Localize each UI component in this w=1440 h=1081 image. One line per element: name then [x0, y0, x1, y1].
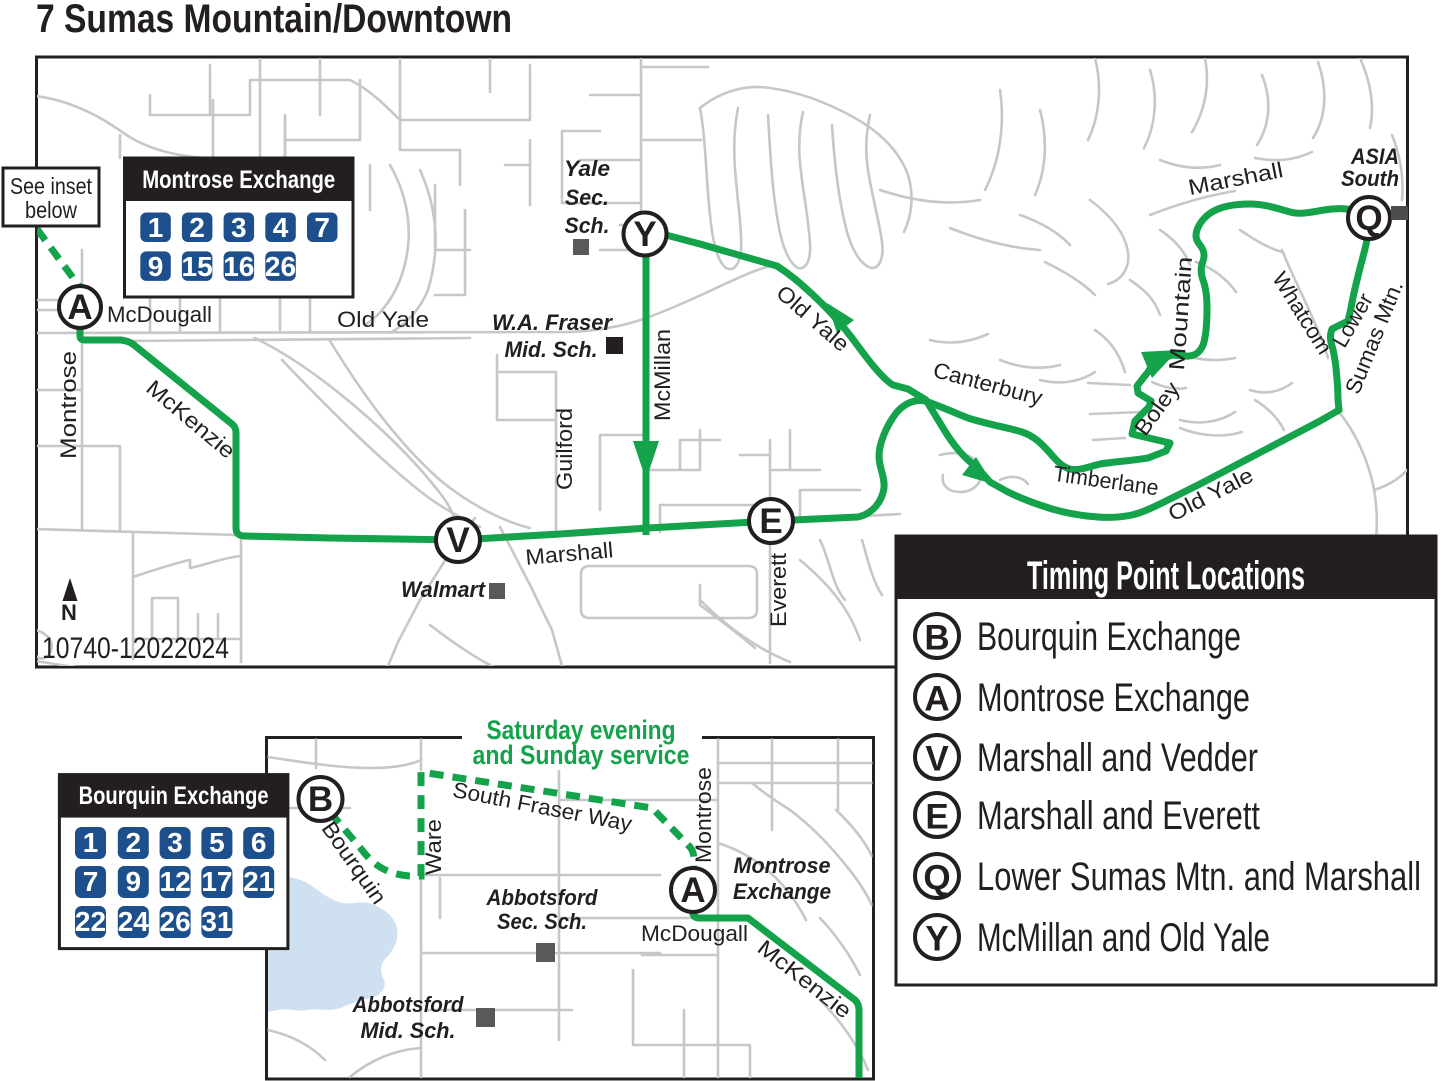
svg-text:2: 2 [189, 212, 205, 243]
svg-text:See inset: See inset [10, 173, 93, 199]
svg-text:Montrose: Montrose [734, 853, 831, 878]
svg-text:3: 3 [167, 827, 183, 858]
svg-text:21: 21 [243, 866, 274, 897]
svg-text:31: 31 [201, 906, 232, 937]
svg-text:Exchange: Exchange [733, 879, 831, 904]
svg-text:V: V [446, 521, 470, 560]
svg-text:A: A [924, 680, 949, 719]
svg-text:and Sunday service: and Sunday service [473, 740, 690, 770]
svg-text:Walmart: Walmart [401, 577, 487, 602]
svg-text:B: B [308, 780, 333, 819]
svg-text:22: 22 [75, 906, 106, 937]
svg-text:Bourquin Exchange: Bourquin Exchange [977, 615, 1241, 659]
svg-text:17: 17 [201, 866, 232, 897]
svg-text:10740-12022024: 10740-12022024 [42, 632, 229, 665]
svg-text:Sec.: Sec. [565, 185, 609, 210]
svg-text:3: 3 [231, 212, 247, 243]
svg-text:1: 1 [148, 212, 164, 243]
svg-text:Y: Y [633, 215, 656, 254]
svg-text:Montrose Exchange: Montrose Exchange [142, 166, 335, 194]
svg-text:4: 4 [273, 212, 289, 243]
svg-text:7: 7 [83, 866, 99, 897]
svg-text:9: 9 [148, 251, 164, 282]
svg-text:15: 15 [182, 251, 213, 282]
svg-text:Montrose: Montrose [691, 767, 716, 863]
svg-text:Montrose: Montrose [56, 351, 81, 459]
svg-text:Q: Q [1355, 199, 1382, 238]
svg-text:E: E [925, 798, 948, 837]
svg-text:South: South [1341, 166, 1399, 191]
svg-text:Timing Point Locations: Timing Point Locations [1027, 554, 1305, 598]
svg-text:V: V [925, 740, 949, 779]
svg-text:7 Sumas Mountain/Downtown: 7 Sumas Mountain/Downtown [36, 0, 512, 41]
svg-text:A: A [680, 871, 705, 910]
svg-text:1: 1 [83, 827, 99, 858]
svg-text:Y: Y [925, 920, 948, 959]
svg-text:McMillan and Old Yale: McMillan and Old Yale [977, 916, 1270, 960]
svg-text:16: 16 [223, 251, 254, 282]
svg-text:Yale: Yale [564, 156, 610, 181]
svg-text:12: 12 [160, 866, 191, 897]
svg-text:Marshall and Everett: Marshall and Everett [977, 794, 1260, 838]
svg-text:Ware: Ware [421, 819, 446, 875]
svg-text:Sec. Sch.: Sec. Sch. [497, 909, 587, 934]
svg-text:Mid. Sch.: Mid. Sch. [505, 337, 598, 362]
svg-text:Old Yale: Old Yale [337, 307, 429, 332]
svg-text:Lower Sumas Mtn. and Marshall: Lower Sumas Mtn. and Marshall [977, 855, 1421, 899]
svg-text:E: E [759, 502, 782, 541]
svg-text:Bourquin Exchange: Bourquin Exchange [79, 782, 269, 810]
svg-text:9: 9 [126, 866, 142, 897]
svg-text:26: 26 [265, 251, 296, 282]
svg-text:McDougall: McDougall [641, 921, 748, 946]
svg-text:7: 7 [314, 212, 330, 243]
svg-text:Abbotsford: Abbotsford [352, 992, 464, 1017]
svg-text:B: B [924, 619, 949, 658]
svg-text:Everett: Everett [766, 553, 791, 627]
svg-text:McMillan: McMillan [650, 329, 675, 421]
svg-text:below: below [25, 197, 77, 223]
svg-text:N: N [61, 600, 77, 625]
svg-text:A: A [67, 288, 92, 327]
svg-text:Mid. Sch.: Mid. Sch. [361, 1018, 456, 1043]
svg-text:2: 2 [126, 827, 142, 858]
svg-text:W.A. Fraser: W.A. Fraser [492, 310, 613, 335]
svg-text:26: 26 [160, 906, 191, 937]
svg-text:Guilford: Guilford [552, 408, 577, 490]
svg-text:Abbotsford: Abbotsford [486, 885, 598, 910]
svg-text:Marshall and Vedder: Marshall and Vedder [977, 736, 1258, 780]
svg-text:Montrose Exchange: Montrose Exchange [977, 676, 1250, 720]
svg-text:6: 6 [251, 827, 267, 858]
svg-text:24: 24 [118, 906, 150, 937]
svg-text:5: 5 [209, 827, 225, 858]
svg-text:McDougall: McDougall [107, 302, 212, 327]
svg-text:Q: Q [923, 859, 950, 898]
svg-text:Sch.: Sch. [565, 213, 610, 238]
